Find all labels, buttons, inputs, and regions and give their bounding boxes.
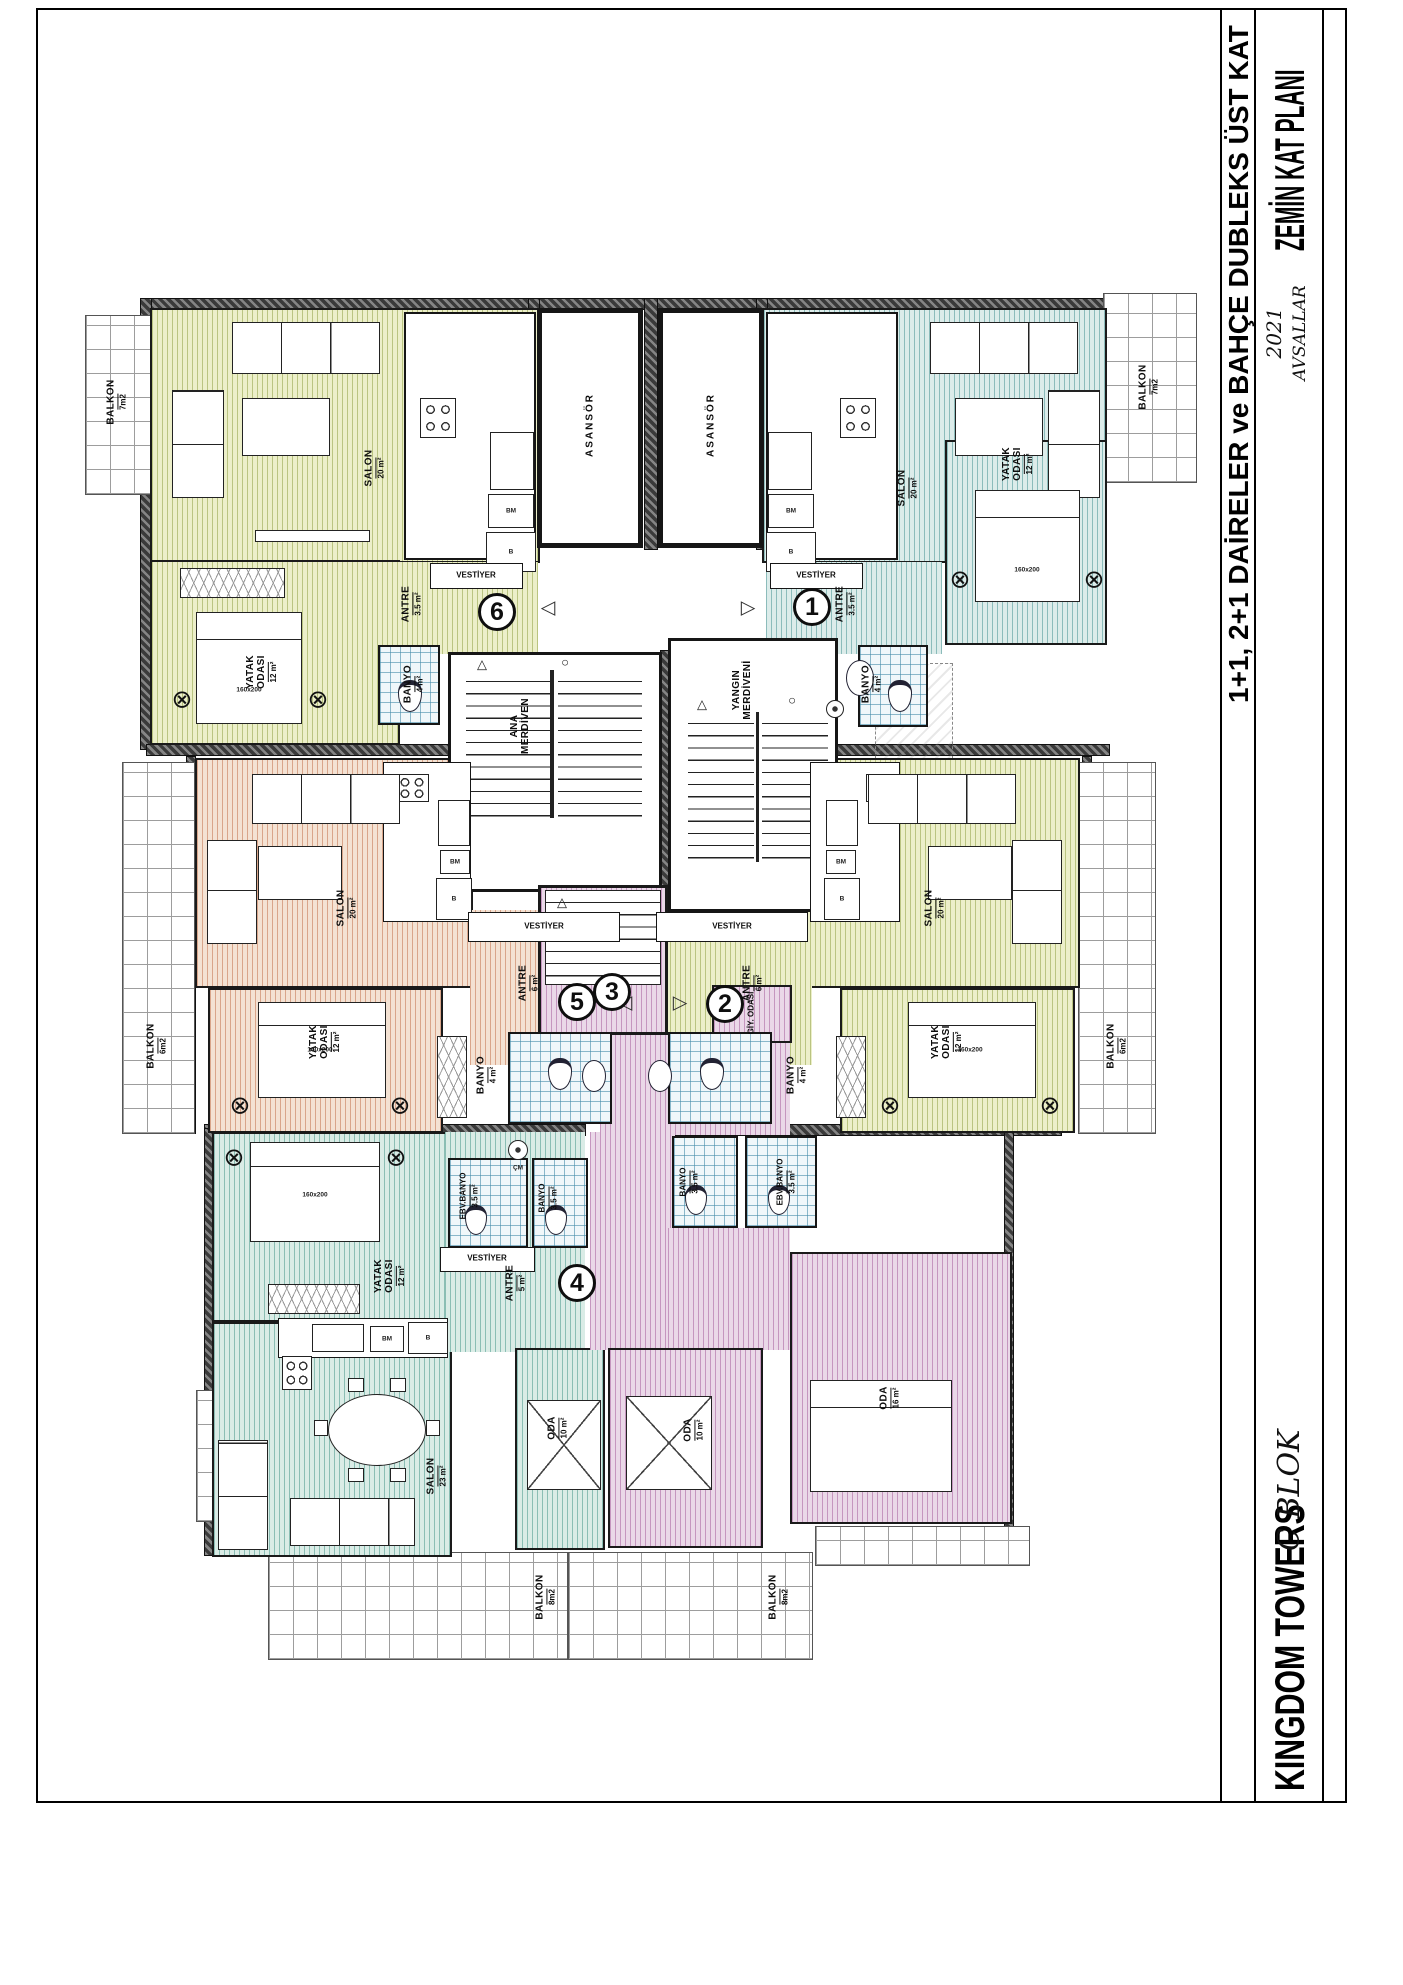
apt4-vestiyer-label: VESTİYER bbox=[467, 1255, 507, 1264]
apt4-ebv-banyo-label: EBV.BANYO3.5 m² bbox=[460, 1173, 481, 1220]
sofa bbox=[207, 840, 257, 944]
nightstand-icon: ⊗ bbox=[230, 1094, 251, 1119]
bed-size-label: 160x200 bbox=[302, 1192, 327, 1199]
dishwasher-label: BM bbox=[836, 859, 846, 866]
sofa bbox=[218, 1440, 268, 1550]
titleblock-main-strip: KINGDOM TOWERS C BLOK 2021 AVSALLAR ZEMİ… bbox=[1256, 8, 1324, 1803]
coffee-table bbox=[258, 846, 342, 900]
stair-up-icon: △ bbox=[557, 896, 567, 909]
wardrobe bbox=[180, 568, 285, 598]
washing-machine-icon bbox=[826, 700, 844, 718]
apt1-salon-label: SALON20 m² bbox=[896, 470, 919, 507]
plan-title: ZEMİN KAT PLANI bbox=[1266, 69, 1314, 251]
apt1-number: 1 bbox=[793, 588, 831, 626]
balcony-apt2 bbox=[1078, 762, 1156, 1134]
apt2-salon-label: SALON20 m² bbox=[923, 890, 946, 927]
wardrobe bbox=[268, 1284, 360, 1314]
apt6-banyo-label: BANYO4 m² bbox=[402, 665, 425, 703]
tv-unit bbox=[255, 530, 370, 542]
nightstand-icon: ⊗ bbox=[880, 1094, 901, 1119]
nightstand-icon: ⊗ bbox=[308, 688, 329, 713]
chair bbox=[426, 1420, 440, 1436]
fire-stair-label: YANGINMERDİVENİ bbox=[731, 660, 753, 719]
sofa bbox=[290, 1498, 415, 1546]
titleblock-subtitle-strip: 1+1, 2+1 DAİRELER ve BAHÇE DUBLEKS ÜST K… bbox=[1220, 8, 1256, 1803]
wardrobe bbox=[836, 1036, 866, 1118]
nightstand-icon: ⊗ bbox=[172, 688, 193, 713]
block-name: C BLOK bbox=[1272, 1430, 1307, 1551]
apt3-banyo-label: BANYO3.5 m² bbox=[680, 1168, 701, 1197]
sofa bbox=[930, 322, 1078, 374]
apt5-salon-label: SALON20 m² bbox=[335, 890, 358, 927]
apt2-number: 2 bbox=[706, 985, 744, 1023]
nightstand-icon: ⊗ bbox=[224, 1146, 245, 1171]
apt1-bedroom-label: YATAK ODASI12 m² bbox=[1001, 441, 1035, 487]
sheet: ⊗ ⊗ ⊗ ⊗ ⊗ ⊗ ⊗ ⊗ ⊗ ⊗ ÇM ◁ ▷ ◁ ▷ △ ○ △ ○ △… bbox=[0, 0, 1403, 1985]
sink-icon bbox=[582, 1060, 606, 1092]
apt1-vestiyer-label: VESTİYER bbox=[796, 572, 836, 581]
stair-up-icon: △ bbox=[477, 658, 487, 671]
balcony-apt4 bbox=[268, 1552, 568, 1660]
single-bed bbox=[626, 1396, 712, 1490]
washing-machine-icon bbox=[508, 1140, 528, 1160]
apt6-salon-label: SALON20 m² bbox=[363, 450, 386, 487]
apt4-number: 4 bbox=[558, 1264, 596, 1302]
dining-table bbox=[328, 1394, 426, 1466]
apt4-antre-label: ANTRE5 m² bbox=[504, 1265, 527, 1301]
bed-size-label: 160x200 bbox=[957, 1047, 982, 1054]
dishwasher-label: BM bbox=[382, 1336, 392, 1343]
apt6-number: 6 bbox=[478, 593, 516, 631]
sofa bbox=[868, 774, 1016, 824]
dishwasher-label: BM bbox=[506, 508, 516, 515]
wall bbox=[644, 298, 658, 550]
chair bbox=[390, 1378, 406, 1392]
elevator-left-label: ASANSÖR bbox=[584, 393, 595, 457]
apt3-balkon-label: BALKON8m2 bbox=[767, 1574, 790, 1619]
sofa bbox=[1048, 390, 1100, 498]
entry-arrow-icon: ◁ bbox=[541, 599, 556, 618]
fridge-label: B bbox=[452, 896, 457, 903]
chair bbox=[390, 1468, 406, 1482]
coffee-table bbox=[242, 398, 330, 456]
fridge-label: B bbox=[789, 549, 794, 556]
apt1-balkon-label: BALKON7m2 bbox=[1137, 364, 1160, 409]
stair-treads bbox=[558, 670, 642, 818]
sofa bbox=[252, 774, 400, 824]
apt3-number: 3 bbox=[593, 973, 631, 1011]
sink-unit bbox=[768, 432, 812, 490]
apt1-banyo-label: BANYO4 m² bbox=[860, 665, 883, 703]
apt3-oda-small-label: ODA10 m² bbox=[682, 1418, 705, 1441]
nightstand-icon: ⊗ bbox=[390, 1094, 411, 1119]
dishwasher-label: BM bbox=[786, 508, 796, 515]
bed-size-label: 160x200 bbox=[236, 687, 261, 694]
stair-spine bbox=[756, 712, 759, 862]
fridge-label: B bbox=[509, 549, 514, 556]
apt6-balkon-label: BALKON7m2 bbox=[105, 379, 128, 424]
apt6-vestiyer-label: VESTİYER bbox=[456, 572, 496, 581]
apt6-antre-label: ANTRE3.5 m² bbox=[400, 586, 423, 622]
single-bed bbox=[527, 1400, 601, 1490]
apt4-salon-label: SALON23 m² bbox=[425, 1458, 448, 1495]
wardrobe bbox=[437, 1036, 467, 1118]
elevator-right-label: ASANSÖR bbox=[705, 393, 716, 457]
sink-unit bbox=[826, 800, 858, 846]
sink-icon bbox=[648, 1060, 672, 1092]
entry-arrow-icon: ▷ bbox=[673, 994, 688, 1013]
nightstand-icon: ⊗ bbox=[386, 1146, 407, 1171]
sofa bbox=[172, 390, 224, 498]
apt5-vestiyer-label: VESTİYER bbox=[524, 923, 564, 932]
apt1-antre-label: ANTRE3.5 m² bbox=[834, 586, 857, 622]
sofa bbox=[232, 322, 380, 374]
wall bbox=[146, 744, 482, 756]
apt4-balkon-label: BALKON8m2 bbox=[534, 1574, 557, 1619]
fridge-label: B bbox=[426, 1335, 431, 1342]
stair-up-icon: △ bbox=[697, 698, 707, 711]
apt5-balkon-label: BALKON6m2 bbox=[145, 1023, 168, 1068]
location-label: AVSALLAR bbox=[1290, 283, 1310, 383]
sofa bbox=[1012, 840, 1062, 944]
main-stair-label: ANAMERDİVEN bbox=[509, 698, 531, 754]
apt3-ebv-banyo-label: EBV.BANYO3.5 m² bbox=[777, 1159, 798, 1206]
sink-unit bbox=[490, 432, 534, 490]
apt3-dressing-label: GİY. ODASI bbox=[748, 990, 757, 1036]
apt3-hall3-area bbox=[668, 1228, 790, 1350]
bed-size-label: 160x200 bbox=[307, 1047, 332, 1054]
wall bbox=[800, 744, 1110, 756]
stair-node-icon: ○ bbox=[788, 694, 796, 707]
plan-subtitle: 1+1, 2+1 DAİRELER ve BAHÇE DUBLEKS ÜST K… bbox=[1223, 25, 1255, 703]
double-bed bbox=[975, 490, 1080, 602]
chair bbox=[314, 1420, 328, 1436]
entry-arrow-icon: ▷ bbox=[741, 599, 756, 618]
apt5-bedroom-label: YATAK ODASI12 m² bbox=[308, 1019, 342, 1065]
nightstand-icon: ⊗ bbox=[1040, 1094, 1061, 1119]
washer-label: ÇM bbox=[513, 1165, 523, 1172]
chair bbox=[348, 1378, 364, 1392]
apt3-hall2-area bbox=[590, 1132, 675, 1350]
chair bbox=[348, 1468, 364, 1482]
apt5-antre-label: ANTRE6 m² bbox=[517, 965, 540, 1001]
stove-icon bbox=[840, 398, 876, 438]
apt2-balkon-label: BALKON6m2 bbox=[1105, 1023, 1128, 1068]
year-label: 2021 bbox=[1262, 283, 1286, 383]
apt4-banyo-label: BANYO3.5 m² bbox=[539, 1184, 560, 1213]
apt2-vestiyer-label: VESTİYER bbox=[712, 923, 752, 932]
stove-icon bbox=[395, 774, 429, 802]
fridge-label: B bbox=[840, 896, 845, 903]
stair-node-icon: ○ bbox=[561, 656, 569, 669]
apt4-oda-label: ODA10 m² bbox=[546, 1416, 569, 1439]
stair-treads bbox=[688, 712, 754, 862]
sink-unit bbox=[438, 800, 470, 846]
nightstand-icon: ⊗ bbox=[1084, 568, 1105, 593]
apt2-banyo-label: BANYO4 m² bbox=[785, 1056, 808, 1094]
apt4-bedroom-label: YATAK ODASI12 m² bbox=[373, 1253, 407, 1299]
balcony-apt5 bbox=[122, 762, 195, 1134]
stove-icon bbox=[420, 398, 456, 438]
balcony-apt3-side bbox=[815, 1526, 1030, 1566]
stove-icon bbox=[282, 1356, 312, 1390]
nightstand-icon: ⊗ bbox=[950, 568, 971, 593]
apt5-banyo-label: BANYO4 m² bbox=[475, 1056, 498, 1094]
apt2-bedroom-label: YATAK ODASI12 m² bbox=[930, 1019, 964, 1065]
sink-unit bbox=[312, 1324, 364, 1352]
apt5-number: 5 bbox=[558, 983, 596, 1021]
stair-spine bbox=[550, 670, 554, 818]
apt3-oda-big-label: ODA16 m² bbox=[878, 1386, 901, 1409]
bed-size-label: 160x200 bbox=[1014, 567, 1039, 574]
dishwasher-label: BM bbox=[450, 859, 460, 866]
